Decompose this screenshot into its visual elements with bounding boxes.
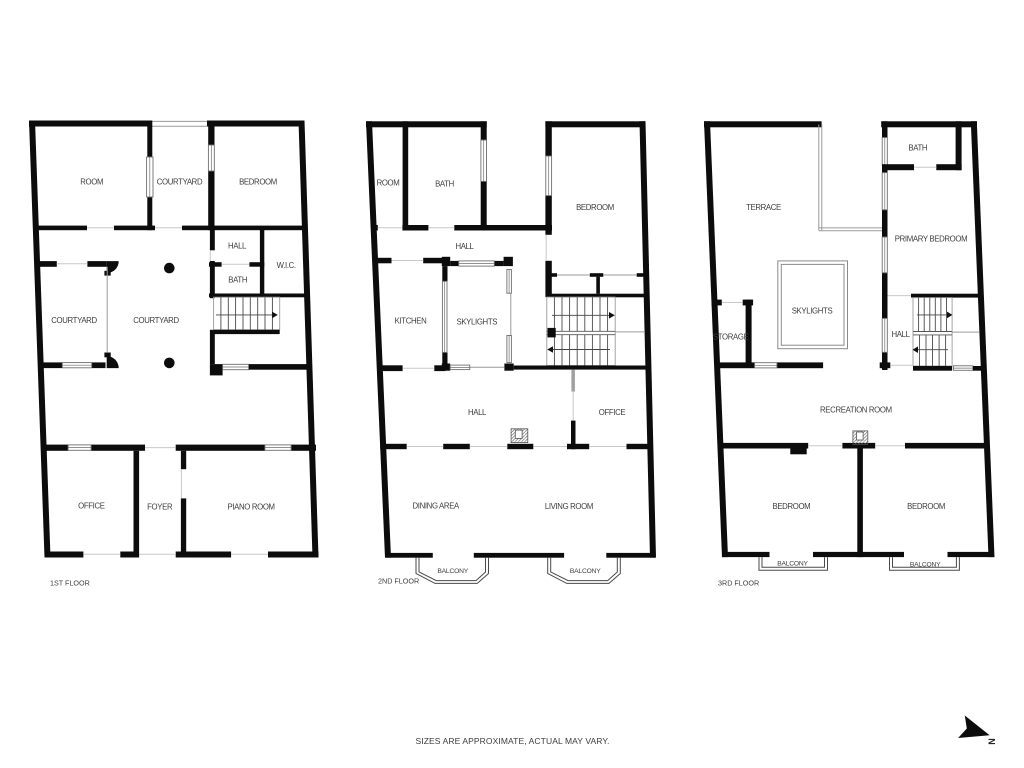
svg-text:HALL: HALL <box>228 242 247 251</box>
svg-text:SKYLIGHTS: SKYLIGHTS <box>456 317 497 326</box>
svg-text:BATH: BATH <box>908 144 927 153</box>
svg-text:OFFICE: OFFICE <box>599 408 626 417</box>
svg-text:HALL: HALL <box>455 242 474 251</box>
svg-text:N: N <box>987 738 997 745</box>
svg-text:RECREATION ROOM: RECREATION ROOM <box>820 406 892 415</box>
svg-text:SIZES ARE APPROXIMATE, ACTUAL: SIZES ARE APPROXIMATE, ACTUAL MAY VARY. <box>416 736 610 746</box>
svg-text:HALL: HALL <box>468 408 487 417</box>
svg-text:BALCONY: BALCONY <box>570 568 601 575</box>
svg-text:2ND FLOOR: 2ND FLOOR <box>378 577 419 586</box>
svg-text:COURTYARD: COURTYARD <box>133 316 179 325</box>
svg-text:BEDROOM: BEDROOM <box>772 502 810 511</box>
svg-text:BEDROOM: BEDROOM <box>576 203 614 212</box>
svg-text:PIANO ROOM: PIANO ROOM <box>228 502 275 511</box>
svg-text:W.I.C.: W.I.C. <box>277 261 296 270</box>
svg-text:DINING AREA: DINING AREA <box>412 501 460 510</box>
svg-text:BATH: BATH <box>435 179 454 188</box>
svg-text:FOYER: FOYER <box>147 502 173 511</box>
svg-text:STORAGE: STORAGE <box>713 333 749 342</box>
svg-text:KITCHEN: KITCHEN <box>395 317 427 326</box>
svg-text:LIVING ROOM: LIVING ROOM <box>545 502 593 511</box>
svg-text:BEDROOM: BEDROOM <box>239 177 277 186</box>
svg-text:ROOM: ROOM <box>80 177 103 186</box>
svg-text:BALCONY: BALCONY <box>437 568 468 575</box>
svg-text:BEDROOM: BEDROOM <box>907 502 945 511</box>
svg-text:ROOM: ROOM <box>377 179 400 188</box>
svg-text:OFFICE: OFFICE <box>78 502 105 511</box>
svg-text:SKYLIGHTS: SKYLIGHTS <box>792 306 833 315</box>
svg-text:BATH: BATH <box>228 275 247 284</box>
svg-text:TERRACE: TERRACE <box>746 203 781 212</box>
svg-text:HALL: HALL <box>892 330 911 339</box>
svg-text:COURTYARD: COURTYARD <box>51 316 97 325</box>
svg-text:3RD FLOOR: 3RD FLOOR <box>718 579 759 588</box>
svg-text:BALCONY: BALCONY <box>777 561 808 568</box>
svg-text:1ST FLOOR: 1ST FLOOR <box>50 579 90 588</box>
svg-text:PRIMARY BEDROOM: PRIMARY BEDROOM <box>895 235 967 244</box>
svg-text:COURTYARD: COURTYARD <box>157 177 203 186</box>
svg-text:BALCONY: BALCONY <box>910 561 941 568</box>
